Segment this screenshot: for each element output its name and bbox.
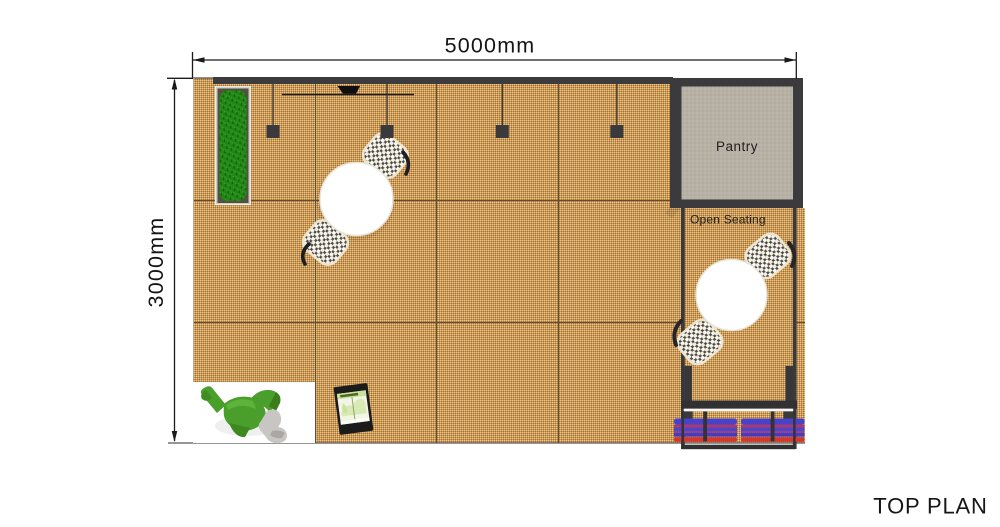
svg-text:TOP PLAN: TOP PLAN bbox=[873, 494, 987, 519]
svg-text:3000mm: 3000mm bbox=[144, 217, 168, 308]
svg-text:Pantry: Pantry bbox=[716, 139, 758, 154]
svg-text:5000mm: 5000mm bbox=[445, 34, 536, 58]
svg-text:Open Seating: Open Seating bbox=[690, 213, 766, 227]
